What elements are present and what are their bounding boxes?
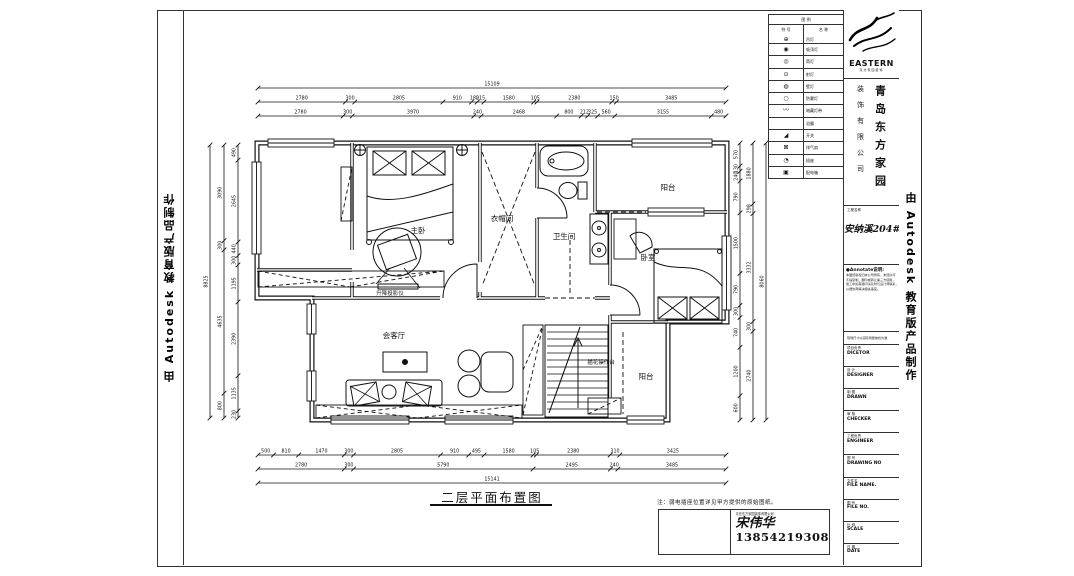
wall-lamp-icons [355, 145, 468, 156]
title-block: EASTERN 东方家园装饰 青岛东方家园 装饰有限公司 工程名称 安纳溪204… [843, 10, 899, 565]
titleblock-note: 现场尺寸以实际测量放线为准 [844, 332, 899, 345]
room-label-bathroom: 卫生间 [553, 231, 576, 241]
company-name-section: 青岛东方家园 装饰有限公司 [844, 79, 899, 206]
room-label-balcony-bottom: 阳台 [639, 371, 654, 381]
legend-label: 插座 [804, 155, 843, 166]
dimension-value: 240 [473, 109, 482, 115]
dimension-value: 1880 [746, 167, 752, 179]
legend-symbol-icon: ▣ [769, 167, 804, 178]
titleblock-row: 图 号DRAWING NO [844, 455, 899, 477]
annotate-line: 本图纸版权归本公司所有，未经许可 [846, 273, 897, 278]
dimension-value: 740 [733, 328, 739, 337]
logo-wordmark: EASTERN [844, 59, 899, 68]
dimension-chain: 8825 [203, 143, 212, 421]
dashed-lines [482, 152, 646, 414]
dimension-value: 810 [281, 448, 290, 454]
legend-label: 配电箱 [804, 167, 843, 178]
dimension-value: 300 [343, 109, 352, 115]
dimension-value: 800 [564, 109, 573, 115]
legend-col-symbol: 符 号 [769, 25, 804, 34]
dimension-value: 3485 [665, 95, 677, 101]
dimension-value: 2780 [294, 109, 306, 115]
room-label-bedroom: 卧室 [641, 252, 656, 262]
legend-label: 射灯 [804, 69, 843, 80]
dimension-value: 3970 [407, 109, 419, 115]
legend-label: 防雾灯 [804, 93, 843, 104]
dimension-value: 300 [344, 462, 353, 468]
legend-row: ◢开关 [769, 129, 843, 141]
dimension-value: 910 [450, 448, 459, 454]
titleblock-row: 工程负责ENGINEER [844, 433, 899, 455]
dimension-value: 105 [530, 448, 539, 454]
signature-name: 宋伟华 [735, 516, 829, 531]
titleblock-row: 图 号FILE NO. [844, 500, 899, 522]
legend-row: ⊙射灯 [769, 68, 843, 80]
legend-symbol-icon: ◢ [769, 130, 804, 141]
signature-cell: 青岛东方家园装饰有限公司 宋伟华 13854219308 [731, 510, 829, 554]
titleblock-row-label-en: DESIGNER [847, 373, 899, 379]
legend-header: 图 例 [769, 15, 843, 24]
dimension-value: 2805 [391, 448, 403, 454]
dimension-value: 2380 [568, 95, 580, 101]
legend-symbol-icon: ◉ [769, 44, 804, 55]
legend-symbol-icon: ○ [769, 93, 804, 104]
dimension-value: 300 [217, 241, 223, 250]
dimension-value: 800 [217, 401, 223, 410]
titleblock-row-label-en: DRAWING NO [847, 461, 899, 467]
legend-row: ◎筒灯 [769, 55, 843, 67]
dimension-chain: 57013024079015007903007401200600 [733, 141, 742, 423]
dimension-value: 8060 [759, 275, 765, 287]
coffee-table [383, 352, 427, 372]
round-stools-table [458, 350, 513, 397]
signature-box: 青岛东方家园装饰有限公司 宋伟华 13854219308 [658, 509, 830, 555]
titleblock-row: 制 图DRAWN [844, 389, 899, 411]
dimension-value: 2780 [295, 462, 307, 468]
dimension-chain: 8060 [759, 141, 768, 423]
room-label-cloakroom: 衣帽间 [491, 213, 514, 223]
company-logo-section: EASTERN 东方家园装饰 [844, 10, 899, 79]
bedroom-chair [630, 232, 652, 253]
titleblock-row: 日 期DATE [844, 544, 899, 565]
legend-symbol-icon: ⊙ [769, 69, 804, 80]
titleblock-rows: 项目负责DICETOR设 计DESIGNER制 图DRAWN审 核CHECKER… [844, 345, 899, 565]
titleblock-row-label-en: ENGINEER [847, 439, 899, 445]
dimension-value: 3485 [666, 462, 678, 468]
titleblock-row-label-en: DRAWN [847, 395, 899, 401]
dimension-value: 15109 [484, 81, 499, 87]
legend-symbol-icon [769, 118, 804, 129]
legend-row: ◍壁灯 [769, 80, 843, 92]
room-label-balcony-top: 阳台 [661, 182, 676, 192]
project-name-value: 安纳溪204# [844, 221, 899, 235]
legend-row: ◉吸顶灯 [769, 43, 843, 55]
dimension-chain: 2780300397024024688002123255603155480 [256, 109, 729, 118]
dimension-value: 3090 [217, 187, 223, 199]
legend-label: 吊灯 [804, 34, 843, 43]
legend-label: 排气扇 [804, 142, 843, 153]
legend-label: 壁灯 [804, 81, 843, 92]
sofa [346, 380, 442, 406]
dimension-value: 495 [472, 448, 481, 454]
titleblock-row-label-en: CHECKER [847, 417, 899, 423]
round-chair [373, 228, 421, 289]
dimension-value: 600 [733, 403, 739, 412]
plan-note: 注：弱电插座位置详见甲方提供的原始图纸。 [657, 498, 777, 506]
eastern-swallow-logo-icon [844, 10, 899, 54]
legend-title: 图 例 [769, 15, 843, 24]
legend-symbol-icon: ◍ [769, 81, 804, 92]
dimension-value: 2740 [746, 370, 752, 382]
dimension-value: 2780 [296, 95, 308, 101]
dimension-value: 1580 [503, 95, 515, 101]
legend-symbol-icon: ◔ [769, 155, 804, 166]
dimension-value: 1470 [315, 448, 327, 454]
dimension-value: 300 [746, 322, 752, 331]
dimension-value: 4635 [217, 315, 223, 327]
dimension-value: 570 [733, 150, 739, 159]
dimension-value: 215 [476, 95, 485, 101]
legend-row: ◔插座 [769, 154, 843, 166]
dimension-value: 5790 [437, 462, 449, 468]
dimension-value: 790 [733, 285, 739, 294]
dimension-value: 560 [602, 109, 611, 115]
outer-walls [257, 143, 727, 420]
dimension-value: 310 [610, 448, 619, 454]
company-name-line2: 装饰有限公司 [856, 85, 866, 205]
dimension-chain: 30903004635800 [217, 143, 226, 421]
room-label-master-bedroom: 主卧 [411, 225, 426, 235]
legend-subheader: 符 号 名 称 [769, 24, 843, 34]
legend-label: 开关 [804, 130, 843, 141]
dimension-value: 300 [231, 256, 237, 265]
dimension-value: 480 [714, 109, 723, 115]
project-name-label: 工程名称 [844, 206, 899, 213]
dimension-value: 325 [588, 109, 597, 115]
double-basin [590, 214, 608, 264]
dimension-value: 2380 [567, 448, 579, 454]
titleblock-row-label-en: FILE NO. [847, 505, 899, 511]
dimension-value: 300 [733, 307, 739, 316]
bathtub [540, 146, 588, 176]
legend-col-name: 名 称 [804, 25, 843, 34]
logo-subtext: 东方家园装饰 [844, 68, 899, 72]
signature-phone: 13854219308 [735, 531, 829, 544]
dimension-value: 1135 [231, 387, 237, 399]
dimension-chain: 4902645440300119523901135230 [231, 143, 240, 421]
legend-symbol-icon: ⊠ [769, 142, 804, 153]
project-name-section: 工程名称 安纳溪204# [844, 206, 899, 265]
dimension-value: 1195 [231, 277, 237, 289]
dimension-value: 3425 [667, 448, 679, 454]
toilet [559, 182, 587, 199]
dimension-chain: 15141 [256, 476, 729, 485]
dimension-value: 150 [610, 95, 619, 101]
dimension-chain: 2780300579024952403485 [256, 462, 729, 471]
inner-walls [257, 143, 727, 398]
dimension-chain: 188029833323002740 [746, 141, 755, 423]
titleblock-row: 文件名FILE NAME. [844, 478, 899, 500]
annotate-section: ●Annotate说明: 本图纸版权归本公司所有，未经许可不得复制、翻印或转让第… [844, 265, 899, 332]
titleblock-row: 审 核CHECKER [844, 411, 899, 433]
company-name-line1: 青岛东方家园 [872, 85, 888, 205]
legend-row: 〰暗藏灯带 [769, 104, 843, 116]
legend-symbol-icon: 〰 [769, 105, 804, 116]
dimension-value: 490 [231, 148, 237, 157]
legend-label: 浴霸 [804, 118, 843, 129]
legend-row: ○防雾灯 [769, 92, 843, 104]
titleblock-row-label-en: FILE NAME. [847, 483, 899, 489]
dimension-value: 500 [261, 448, 270, 454]
room-label-flower-table: 插花操作台 [587, 358, 615, 366]
titleblock-row: 项目负责DICETOR [844, 345, 899, 367]
dimension-chain: 27803002805910180215158010523801503485 [256, 95, 729, 104]
drawing-title-underline [430, 504, 552, 506]
legend-table: 图 例 符 号 名 称 ⊕吊灯◉吸顶灯◎筒灯⊙射灯◍壁灯○防雾灯〰暗藏灯带浴霸◢… [768, 14, 844, 179]
dimension-value: 300 [344, 448, 353, 454]
dimension-value: 230 [231, 410, 237, 419]
legend-symbol-icon: ◎ [769, 56, 804, 67]
dimension-chain: 15109 [256, 81, 729, 90]
titleblock-row-label-en: DICETOR [847, 351, 899, 357]
legend-row: 浴霸 [769, 117, 843, 129]
legend-label: 暗藏灯带 [804, 105, 843, 116]
dimension-value: 8825 [203, 275, 209, 287]
legend-row: ▣配电箱 [769, 166, 843, 178]
dimension-value: 298 [746, 204, 752, 213]
room-label-living-room: 会客厅 [383, 330, 406, 340]
dimension-value: 240 [733, 172, 739, 181]
dimension-value: 910 [453, 95, 462, 101]
dimension-value: 2645 [231, 195, 237, 207]
room-label-projector: 升降投影仪 [376, 289, 404, 297]
dimension-chain: 5008101470300280591049515801052380310342… [256, 448, 729, 457]
dimension-value: 240 [610, 462, 619, 468]
dimension-value: 440 [231, 244, 237, 253]
dimension-value: 15141 [484, 476, 499, 482]
dimension-value: 2390 [231, 333, 237, 345]
dimension-value: 2468 [513, 109, 525, 115]
titleblock-row: 设 计DESIGNER [844, 367, 899, 389]
legend-row: ⊠排气扇 [769, 141, 843, 153]
dimension-value: 790 [733, 192, 739, 201]
annotate-line: 以便协商解决相关事宜。 [846, 287, 897, 292]
signature-stamp-cell [659, 510, 731, 554]
legend-label: 吸顶灯 [804, 44, 843, 55]
dimension-value: 105 [531, 95, 540, 101]
dimension-value: 3332 [746, 261, 752, 273]
dimension-value: 1200 [733, 365, 739, 377]
legend-row: ⊕吊灯 [769, 34, 843, 43]
staircase [545, 325, 608, 417]
dimension-value: 2805 [393, 95, 405, 101]
dimension-value: 1580 [502, 448, 514, 454]
bedroom-bed [654, 249, 722, 323]
dimension-value: 1500 [733, 237, 739, 249]
dimension-value: 300 [346, 95, 355, 101]
titleblock-row-label-en: DATE [847, 549, 899, 555]
legend-symbol-icon: ⊕ [769, 34, 804, 43]
titleblock-row: 比 例SCALE [844, 522, 899, 544]
dimension-value: 2495 [566, 462, 578, 468]
legend-label: 筒灯 [804, 56, 843, 67]
dimension-value: 3155 [657, 109, 669, 115]
titleblock-row-label-en: SCALE [847, 527, 899, 533]
